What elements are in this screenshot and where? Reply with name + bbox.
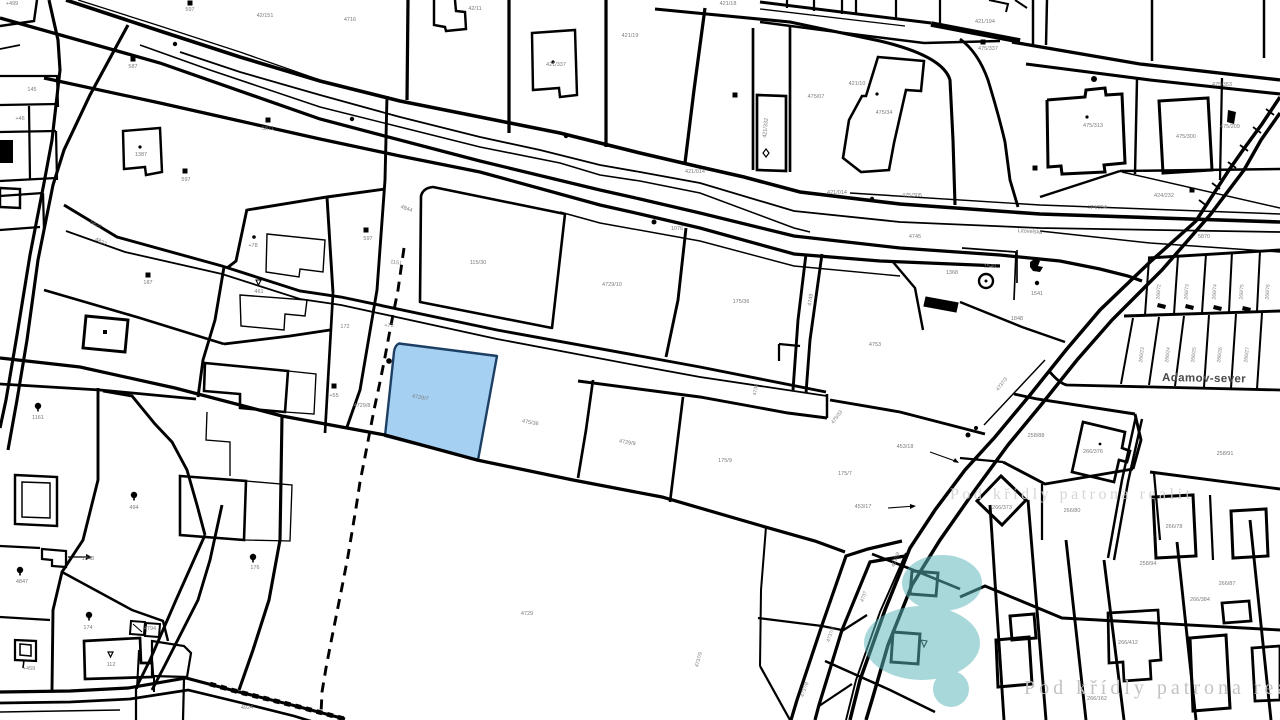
svg-text:266/376: 266/376 bbox=[1083, 449, 1103, 455]
svg-text:5870: 5870 bbox=[1198, 234, 1210, 240]
svg-text:453/17: 453/17 bbox=[855, 504, 872, 510]
svg-text:175/7: 175/7 bbox=[838, 471, 852, 477]
svg-text:+499: +499 bbox=[6, 1, 18, 7]
svg-text:266/87: 266/87 bbox=[1219, 581, 1236, 587]
svg-text:115/30: 115/30 bbox=[470, 260, 486, 266]
svg-text:461: 461 bbox=[254, 289, 263, 295]
svg-text:258/91: 258/91 bbox=[1217, 451, 1234, 457]
svg-text:4716: 4716 bbox=[344, 17, 356, 23]
svg-text:175/9: 175/9 bbox=[718, 458, 732, 464]
svg-text:266/373: 266/373 bbox=[992, 505, 1012, 511]
svg-text:112: 112 bbox=[107, 662, 116, 668]
svg-text:597: 597 bbox=[363, 236, 372, 242]
svg-text:+78: +78 bbox=[248, 243, 257, 249]
svg-text:1387: 1387 bbox=[135, 152, 147, 158]
svg-text:266/78: 266/78 bbox=[1166, 524, 1183, 530]
svg-text:1076: 1076 bbox=[671, 226, 683, 232]
svg-text:266/384: 266/384 bbox=[1190, 597, 1210, 603]
svg-text:453/18: 453/18 bbox=[897, 444, 914, 450]
svg-text:172: 172 bbox=[340, 324, 349, 330]
svg-text:42/11: 42/11 bbox=[468, 6, 481, 12]
svg-text:475/337: 475/337 bbox=[978, 46, 998, 52]
svg-text:597: 597 bbox=[185, 7, 194, 13]
svg-text:4794: 4794 bbox=[144, 626, 156, 632]
svg-text:421/10: 421/10 bbox=[849, 81, 866, 87]
svg-text:475/353: 475/353 bbox=[1212, 82, 1232, 88]
svg-text:475/07: 475/07 bbox=[808, 94, 825, 100]
svg-text:Adamov-sever: Adamov-sever bbox=[1162, 372, 1246, 385]
svg-text:4729/8: 4729/8 bbox=[354, 403, 371, 409]
svg-text:475/313: 475/313 bbox=[1083, 123, 1103, 129]
svg-text:5871: 5871 bbox=[262, 126, 274, 132]
svg-text:421/19: 421/19 bbox=[622, 33, 639, 39]
svg-text:187: 187 bbox=[143, 280, 152, 286]
svg-text:+72: +72 bbox=[384, 323, 393, 329]
svg-text:+46: +46 bbox=[15, 116, 24, 122]
svg-text:4924: 4924 bbox=[241, 705, 253, 711]
svg-text:475/305: 475/305 bbox=[902, 193, 922, 199]
svg-text:4847: 4847 bbox=[16, 579, 28, 585]
svg-text:4729/10: 4729/10 bbox=[602, 282, 622, 288]
svg-text:Pod křídly patrona realit: Pod křídly patrona realit bbox=[1024, 677, 1280, 699]
svg-text:1368: 1368 bbox=[946, 270, 958, 276]
svg-text:4753: 4753 bbox=[869, 342, 881, 348]
svg-text:1161: 1161 bbox=[32, 415, 44, 421]
svg-text:421/014: 421/014 bbox=[685, 169, 705, 175]
svg-text:475/209: 475/209 bbox=[1220, 124, 1240, 130]
svg-text:1549: 1549 bbox=[984, 264, 996, 270]
svg-text:Pod křídly patrona realit: Pod křídly patrona realit bbox=[950, 486, 1193, 503]
svg-text:174: 174 bbox=[83, 625, 92, 631]
svg-text:258/94: 258/94 bbox=[1140, 561, 1157, 567]
svg-text:+55: +55 bbox=[329, 393, 338, 399]
svg-text:597: 597 bbox=[181, 177, 190, 183]
svg-text:175/36: 175/36 bbox=[733, 299, 750, 305]
svg-text:494: 494 bbox=[129, 505, 138, 511]
svg-text:474/354: 474/354 bbox=[1087, 205, 1107, 211]
svg-text:421/014: 421/014 bbox=[827, 190, 847, 196]
svg-text:266/412: 266/412 bbox=[1118, 640, 1138, 646]
svg-text:1848: 1848 bbox=[82, 556, 94, 562]
svg-text:145: 145 bbox=[27, 87, 36, 93]
svg-text:4729: 4729 bbox=[521, 611, 533, 617]
svg-text:1848: 1848 bbox=[1011, 316, 1023, 322]
svg-text:475/300: 475/300 bbox=[1176, 134, 1196, 140]
svg-text:475/34: 475/34 bbox=[876, 110, 893, 116]
svg-text:+459: +459 bbox=[23, 666, 35, 672]
svg-text:266/80: 266/80 bbox=[1064, 508, 1081, 514]
svg-text:1541: 1541 bbox=[1031, 291, 1043, 297]
svg-text:587: 587 bbox=[128, 64, 137, 70]
svg-text:176: 176 bbox=[250, 565, 259, 571]
svg-text:421/18: 421/18 bbox=[720, 1, 737, 7]
svg-text:424/232: 424/232 bbox=[1154, 193, 1174, 199]
svg-text:421/194: 421/194 bbox=[975, 19, 995, 25]
svg-text:42/151: 42/151 bbox=[257, 13, 274, 19]
svg-text:421/337: 421/337 bbox=[546, 62, 566, 68]
svg-text:258/88: 258/88 bbox=[1028, 433, 1045, 439]
svg-text:4745: 4745 bbox=[909, 234, 921, 240]
